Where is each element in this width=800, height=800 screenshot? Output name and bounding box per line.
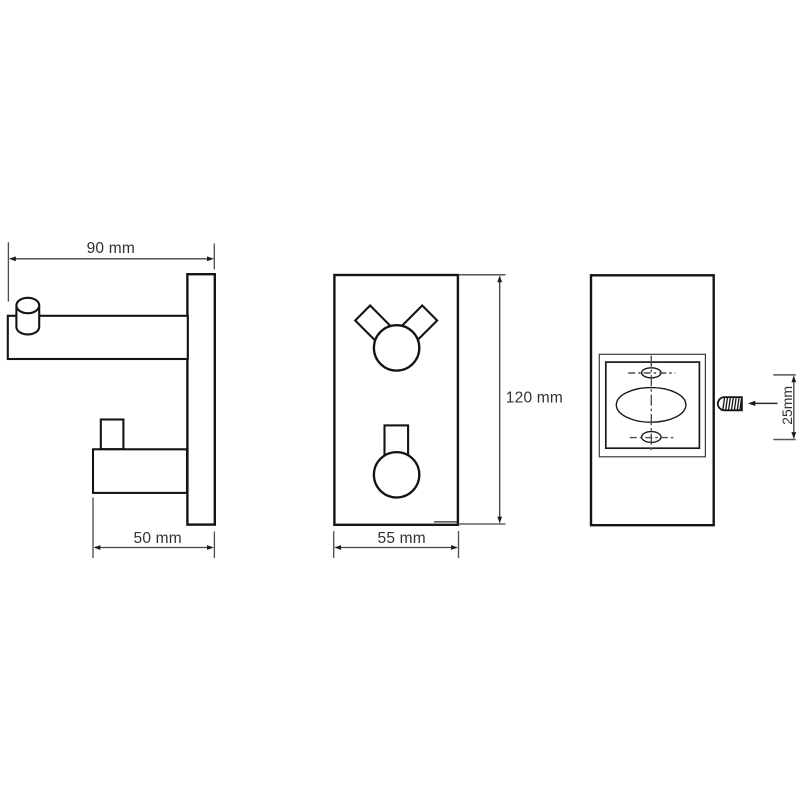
svg-text:25mm: 25mm [779, 386, 795, 425]
svg-text:50 mm: 50 mm [134, 530, 182, 547]
svg-text:120 mm: 120 mm [506, 389, 563, 406]
svg-text:55 mm: 55 mm [378, 530, 426, 547]
svg-text:90 mm: 90 mm [87, 240, 135, 257]
